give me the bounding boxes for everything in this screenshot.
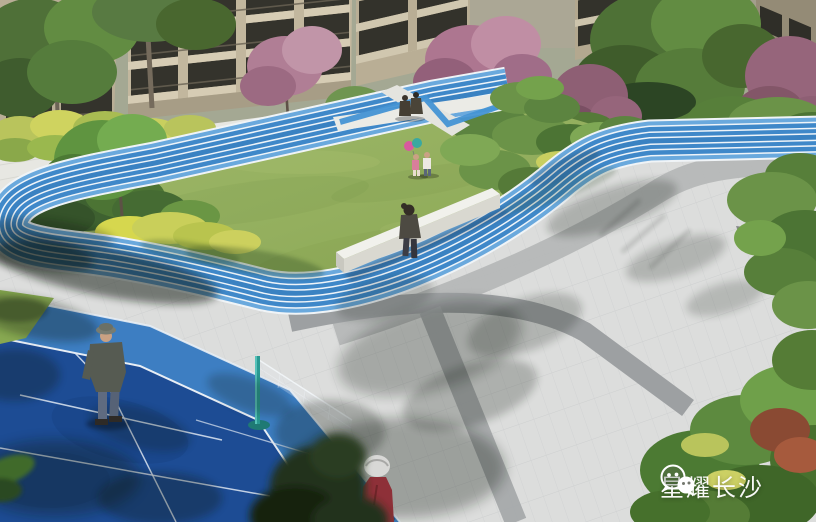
balloon-teal xyxy=(412,138,422,148)
landscape-rendering: 星耀长沙 xyxy=(0,0,816,522)
wechat-logo-icon xyxy=(660,464,698,500)
watermark: 星耀长沙 xyxy=(660,464,764,506)
